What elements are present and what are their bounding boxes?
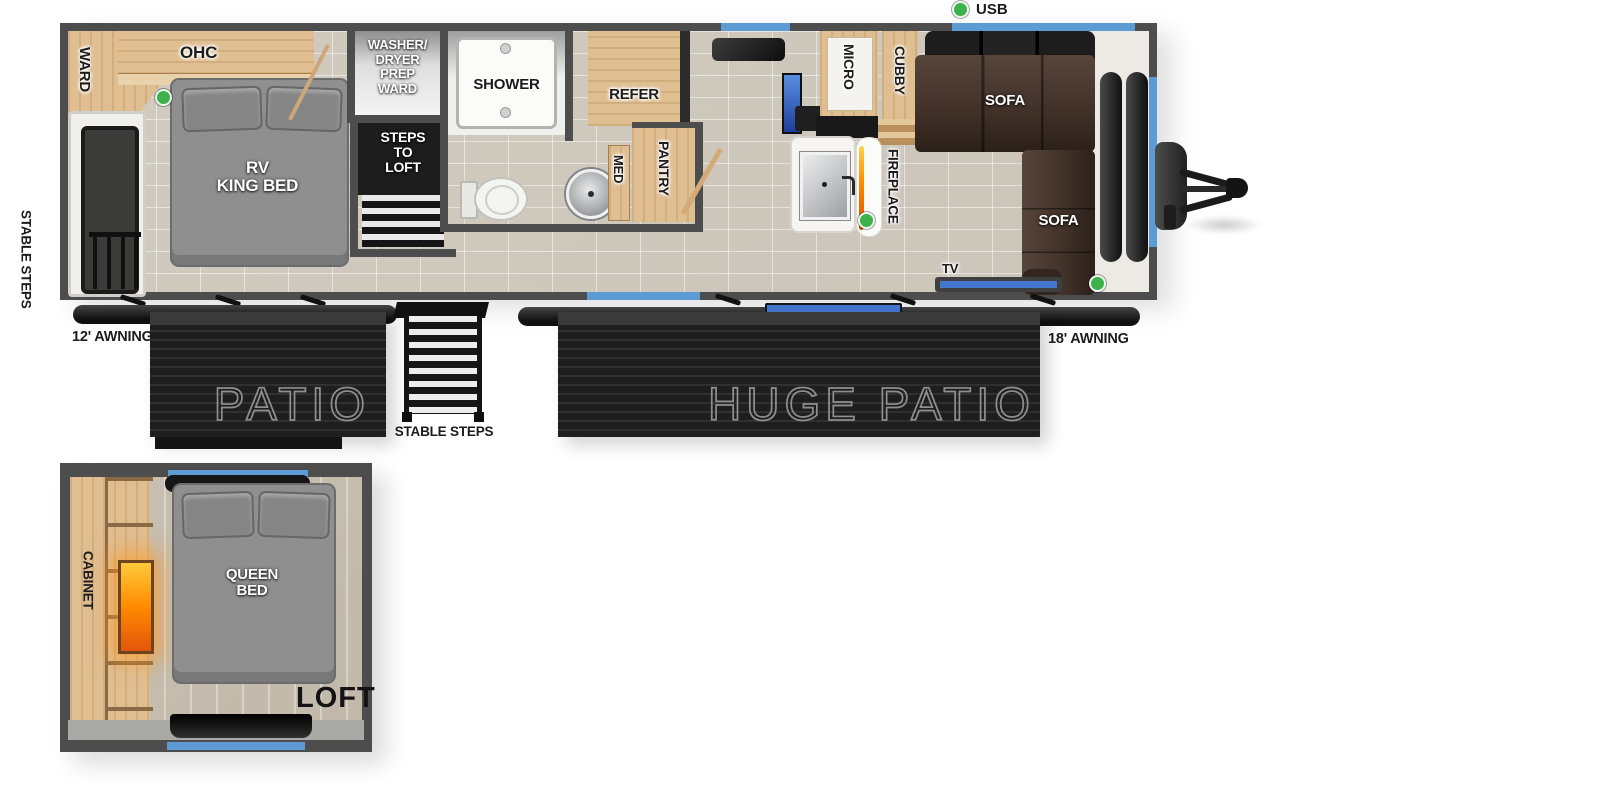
stable-steps-door-label: STABLE STEPS (18, 210, 32, 309)
queen-bed-label: QUEEN BED (172, 567, 332, 599)
bathroom-wall (565, 31, 573, 141)
railing-picket (93, 237, 97, 289)
main-floorplan: WARD OHC RV KING BED WASHER/ DRYER PREP … (60, 23, 1157, 300)
faucet (842, 176, 855, 195)
bathroom-wall (440, 224, 700, 232)
sofa-side-label: SOFA (1022, 213, 1095, 229)
shower-label: SHOWER (448, 77, 565, 93)
ladder-foot (474, 412, 484, 422)
steps-treads (362, 195, 444, 247)
rv-king-bed-label: RV KING BED (170, 159, 345, 195)
hitch-coupler (1226, 178, 1248, 198)
cubby-steps (878, 119, 918, 145)
pillow (257, 491, 331, 539)
fireplace-label: FIREPLACE (885, 149, 899, 224)
med-label: MED (611, 155, 625, 183)
bathroom-wall (440, 31, 448, 232)
micro-label: MICRO (841, 44, 856, 90)
tv (935, 277, 1062, 292)
tongue-jack (1164, 205, 1176, 229)
sink-drain (588, 191, 594, 197)
loft-section: CABINET QUEEN BED LOFT (60, 463, 372, 752)
loft-left-wall (60, 463, 70, 752)
cubby-label: CUBBY (892, 46, 907, 95)
loft-bottom-bench (170, 714, 312, 738)
hitch-arm (1179, 193, 1233, 214)
refrigerator (588, 31, 690, 126)
entry-door (68, 111, 146, 297)
partition-wall (347, 31, 355, 123)
tv-screen (940, 281, 1057, 288)
stable-steps-patio-label: STABLE STEPS (388, 425, 500, 439)
tv-label: TV (942, 262, 958, 276)
usb-indicator-sofa (1089, 275, 1106, 292)
window-bottom (587, 292, 700, 300)
refer-edge (680, 31, 690, 126)
cabinet-label: CABINET (80, 551, 94, 610)
patio-edge (558, 312, 1040, 325)
ohc-label: OHC (180, 44, 217, 62)
loft-label: LOFT (296, 683, 376, 714)
huge-patio-label: HUGE PATIO (708, 377, 1035, 431)
ladder-foot (402, 412, 412, 422)
huge-patio-deck: HUGE PATIO (558, 312, 1040, 437)
patio-deck: PATIO (150, 312, 386, 437)
railing-picket (134, 237, 138, 289)
window-top-sofa (952, 23, 1135, 31)
usb-label: USB (976, 1, 1008, 18)
pillow (181, 86, 262, 133)
refer-label: REFER (588, 87, 680, 103)
patio-edge (150, 312, 386, 325)
hitch-shadow (1185, 216, 1263, 234)
washer-dryer-label: WASHER/ DRYER PREP WARD (355, 38, 440, 96)
toilet (474, 177, 528, 221)
rv-floorplan-diagram: USB WARD OHC RV KING BED (0, 0, 1600, 810)
usb-legend: USB (952, 1, 1008, 18)
ward-label: WARD (76, 47, 92, 92)
railing-picket (121, 237, 125, 289)
sofa-rear-label: SOFA (915, 93, 1095, 109)
micro-base (816, 116, 878, 138)
pantry-label: PANTRY (656, 141, 671, 196)
sink-drain (822, 182, 827, 187)
partition-wall (350, 249, 456, 257)
awning-left-label: 12' AWNING (72, 330, 153, 345)
pillow (181, 491, 255, 539)
patio-shadow (155, 437, 342, 449)
partition-wall (347, 115, 448, 123)
toilet-seat (485, 185, 519, 215)
railing-picket (107, 237, 111, 289)
awning-right-label: 18' AWNING (1048, 332, 1129, 347)
usb-indicator-fireplace (858, 212, 875, 229)
range-hood (712, 38, 785, 61)
stable-steps-ladder (404, 316, 482, 414)
shower-drain (500, 107, 511, 118)
usb-legend-dot (952, 1, 969, 18)
loft-window-bottom (167, 742, 305, 750)
hitch-bar (1182, 186, 1226, 192)
usb-indicator-bedroom (155, 89, 172, 106)
kitchen-island (790, 136, 856, 233)
theater-seat-cushion (1126, 72, 1148, 262)
partition-wall (350, 123, 358, 249)
shower-drain (500, 43, 511, 54)
patio-label: PATIO (214, 377, 370, 431)
theater-seat-cushion (1100, 72, 1122, 262)
window-top-kitchen (721, 23, 790, 31)
loft-fireplace (118, 560, 154, 654)
steps-to-loft-label: STEPS TO LOFT (358, 130, 448, 174)
